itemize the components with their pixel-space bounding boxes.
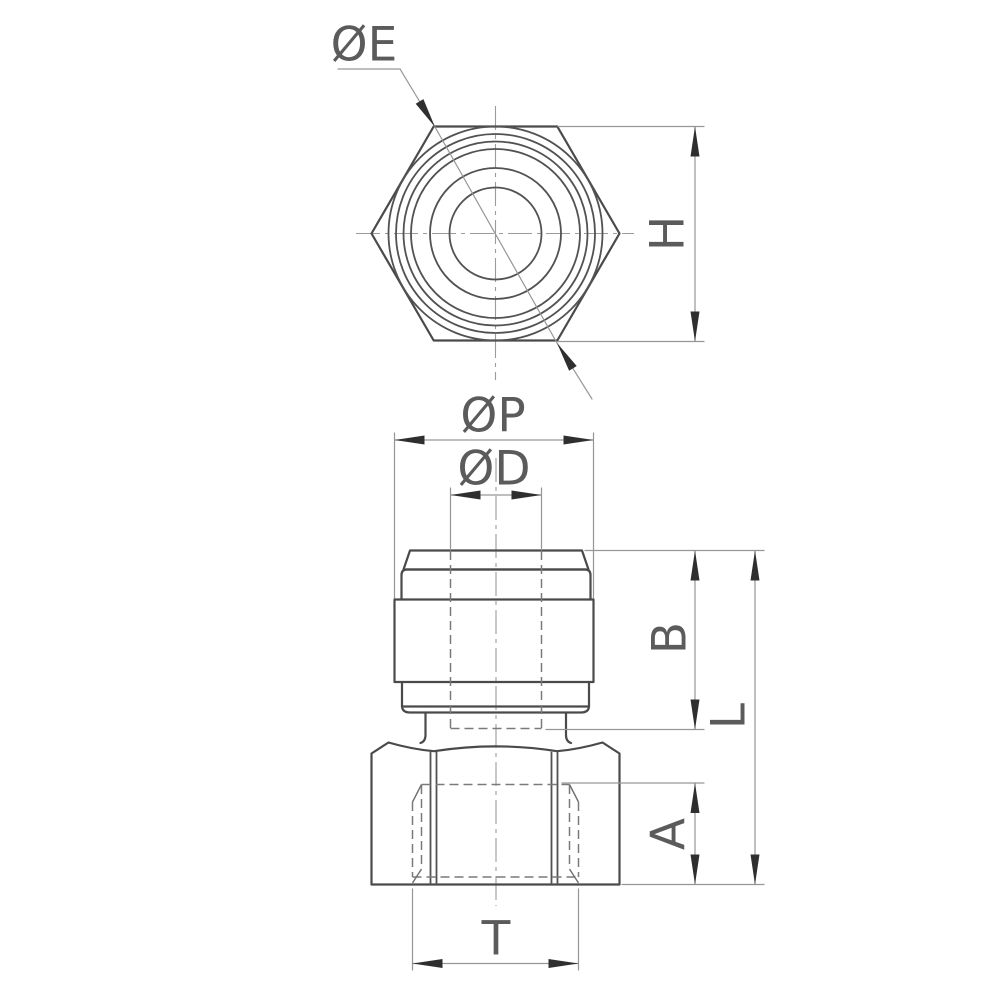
dim-b-arrow-bottom (691, 700, 700, 730)
dim-a-arrow-top (691, 783, 700, 813)
dim-p-arrow-right (564, 436, 594, 445)
dim-t-arrow-right (549, 959, 579, 968)
technical-drawing-canvas: ØE H (0, 0, 1000, 1000)
dim-l-arrow-top (751, 551, 760, 581)
dim-p-arrow-left (395, 436, 425, 445)
dimension-label-h: H (641, 216, 696, 251)
dim-l-arrow-bottom (751, 855, 760, 885)
dimension-label-d: ØD (457, 442, 530, 497)
dimension-label-l: L (702, 703, 757, 729)
dimension-label-p: ØP (460, 389, 525, 444)
dim-e-arrow-bottom-right (557, 343, 577, 371)
dim-h-arrow-bottom (691, 312, 700, 342)
dimension-label-e: ØE (331, 18, 398, 73)
hex-nut-flat-edges (431, 752, 558, 885)
dimension-label-b: B (643, 622, 698, 654)
dim-h-arrow-top (691, 127, 700, 157)
side-view: ØP ØD B L A T (372, 389, 765, 971)
dim-e-arrow-top-left (416, 99, 435, 127)
drawing-sheet: ØE H (0, 0, 1000, 1000)
dim-t-arrow-left (413, 959, 443, 968)
top-view: ØE H (331, 18, 704, 400)
dim-a-arrow-bottom (691, 855, 700, 885)
dim-b-arrow-top (691, 551, 700, 581)
dimension-label-t: T (481, 912, 511, 967)
body-main-sleeve (395, 600, 594, 683)
dimension-label-a: A (642, 818, 697, 850)
